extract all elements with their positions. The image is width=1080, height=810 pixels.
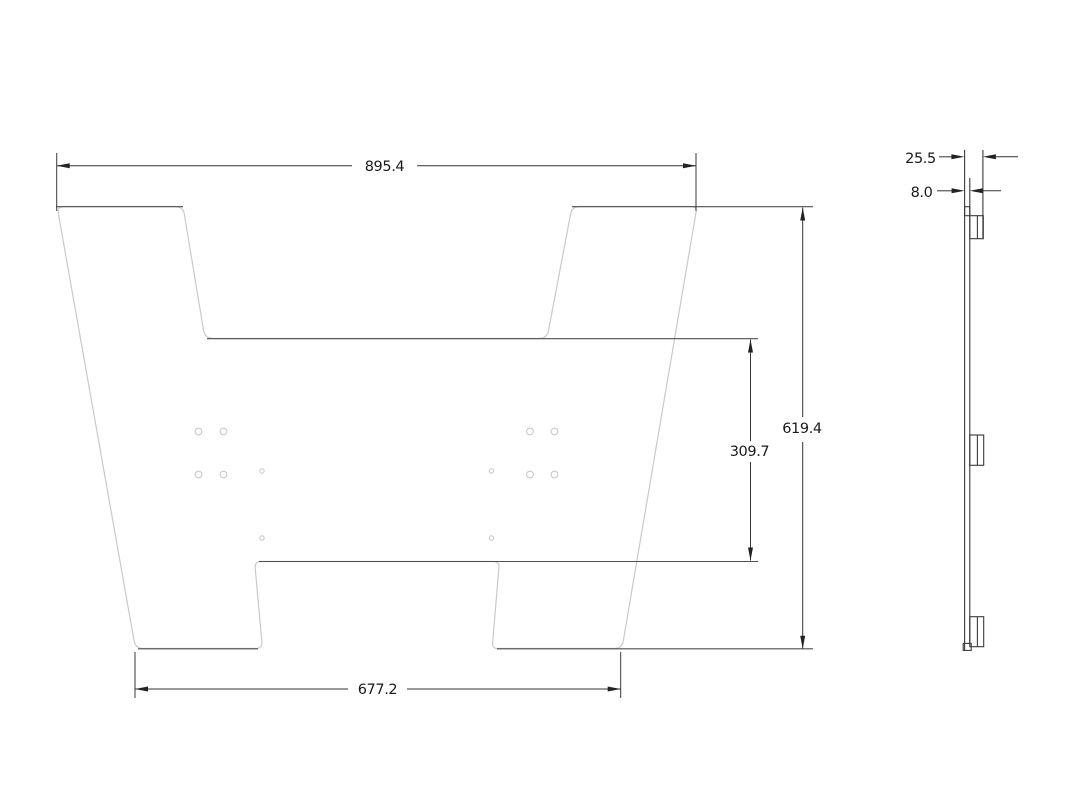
mounting-hole [551,428,558,435]
dim-overall-height: 619.4 [782,208,822,649]
dim-arrow [135,687,148,692]
dim-notch-height-label: 309.7 [730,444,770,460]
dim-notch-height: 309.7 [730,340,770,561]
mounting-hole [195,471,202,478]
dim-arrow [800,636,805,649]
mounting-hole [527,428,534,435]
dim-bottom-width: 677.2 [135,682,621,698]
dim-plate-thickness: 8.0 [911,185,1001,201]
mounting-hole [220,428,227,435]
dim-arrow [970,188,983,193]
small-hole [489,536,493,540]
dim-overall-height-label: 619.4 [782,421,822,437]
technical-drawing-canvas: 895.4 677.2 619.4 309.7 [0,0,1080,810]
dim-overall-depth-label: 25.5 [905,151,936,167]
dim-overall-depth: 25.5 [905,151,1018,167]
plate-section-block [965,207,970,216]
dim-arrow [952,188,965,193]
dim-arrow [748,340,753,353]
front-view-outline [58,207,696,649]
dim-arrow [951,154,964,159]
dim-arrow [748,548,753,561]
dim-top-width-label: 895.4 [365,159,405,175]
bottom-rail-bracket [970,617,984,647]
dim-arrow [57,163,70,168]
middle-rail-bracket [970,435,984,465]
dim-arrow [683,163,696,168]
dim-top-width: 895.4 [57,159,696,175]
dim-bottom-width-label: 677.2 [358,682,398,698]
front-view: 895.4 677.2 619.4 309.7 [56,153,822,698]
top-rail-bracket [970,216,984,239]
dim-arrow [983,154,996,159]
mounting-hole [220,471,227,478]
small-hole [260,536,264,540]
mounting-hole [527,471,534,478]
dim-arrow [800,208,805,221]
mounting-hole [195,428,202,435]
mounting-hole [551,471,558,478]
small-hole [489,469,493,473]
dim-plate-thickness-label: 8.0 [911,185,933,201]
dim-arrow [608,687,621,692]
small-hole [260,469,264,473]
side-view: 25.5 8.0 [905,150,1018,650]
